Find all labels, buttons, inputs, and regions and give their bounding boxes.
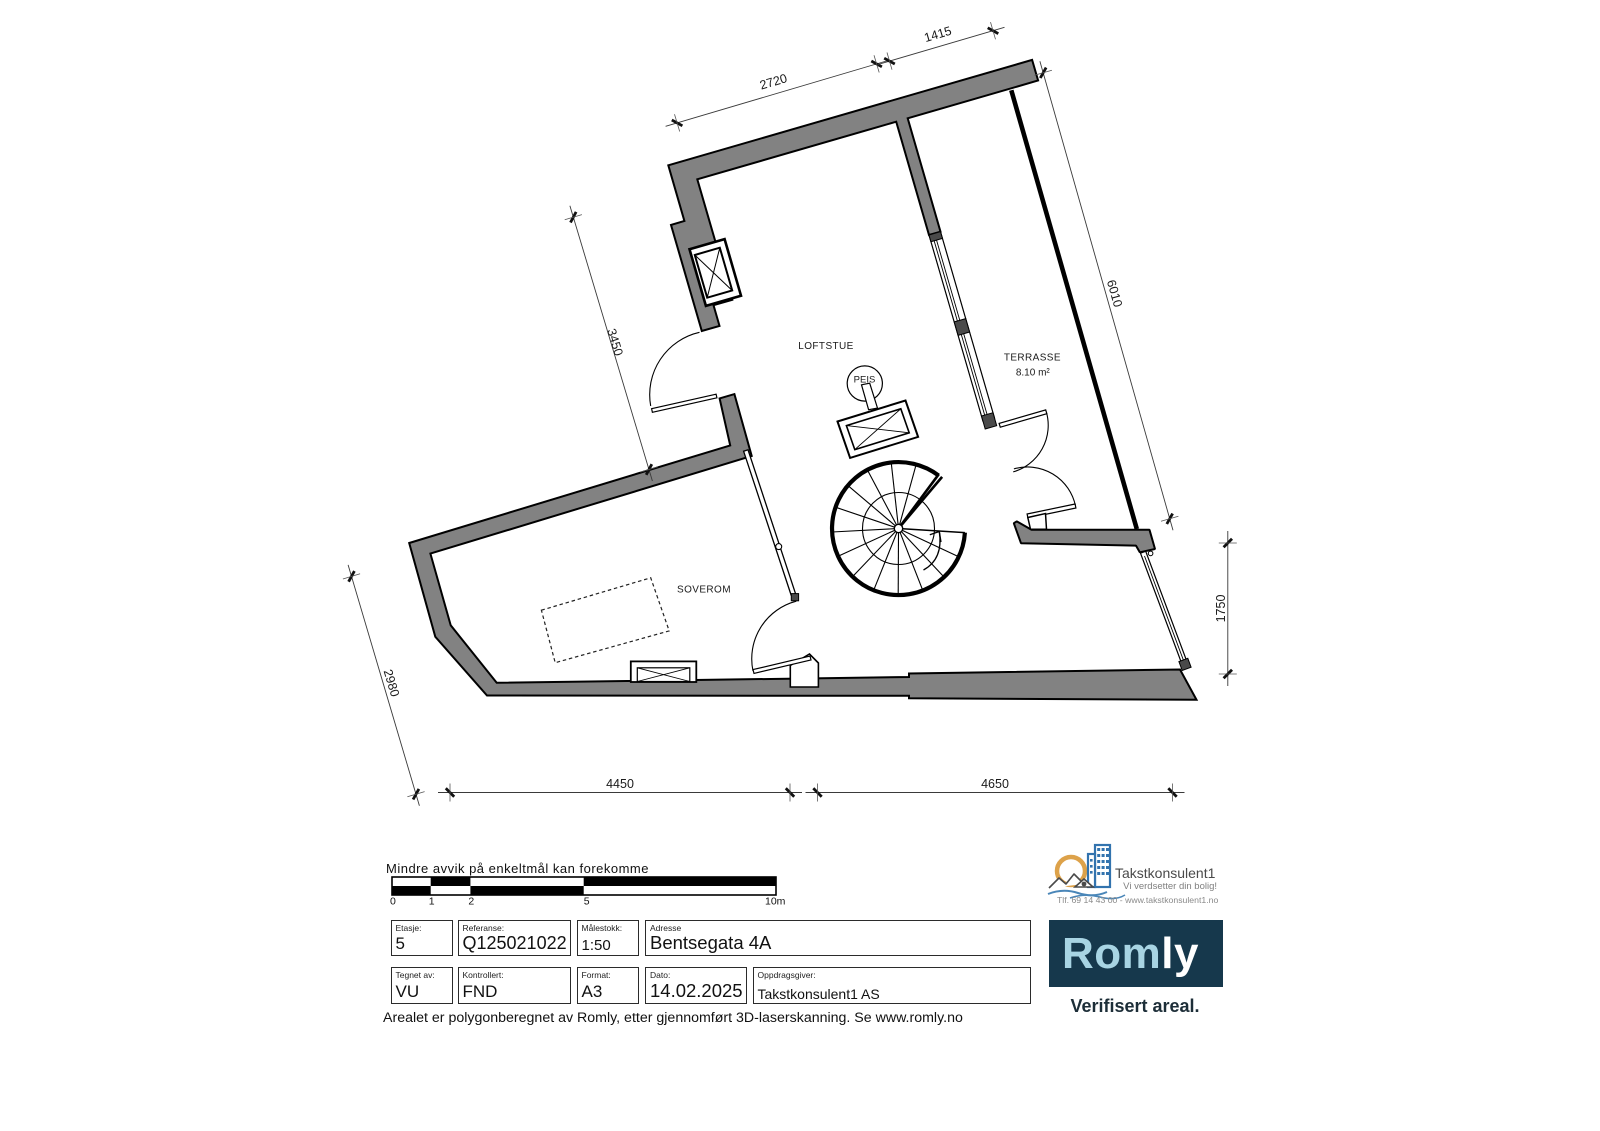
svg-text:1415: 1415 [923,24,954,45]
svg-text:5: 5 [584,896,590,908]
svg-text:3450: 3450 [604,327,625,358]
svg-text:8.10 m²: 8.10 m² [1016,367,1051,378]
svg-text:2980: 2980 [381,668,402,699]
svg-text:10m: 10m [765,896,786,908]
svg-text:2: 2 [468,896,474,908]
svg-text:LOFTSTUE: LOFTSTUE [798,341,853,352]
svg-text:0: 0 [390,896,396,908]
svg-text:6010: 6010 [1104,278,1125,309]
svg-text:2720: 2720 [758,71,789,92]
svg-text:TERRASSE: TERRASSE [1004,353,1061,364]
svg-text:SOVEROM: SOVEROM [677,585,731,596]
svg-text:1: 1 [429,896,435,908]
svg-text:PEIS: PEIS [854,375,876,386]
svg-text:4450: 4450 [606,777,634,791]
svg-text:1750: 1750 [1214,595,1228,623]
svg-text:4650: 4650 [981,777,1009,791]
